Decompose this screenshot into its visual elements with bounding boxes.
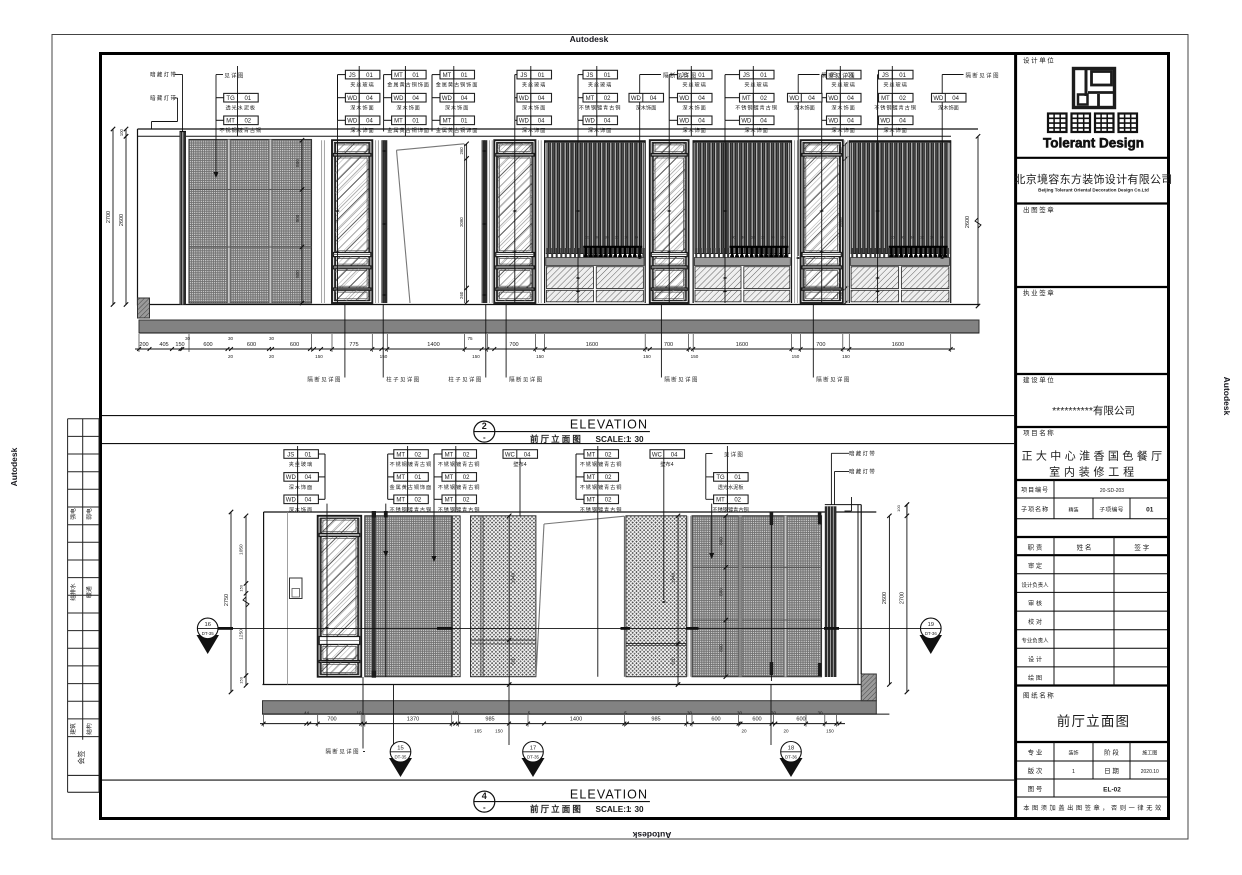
svg-text:深木饰面: 深木饰面 [289,483,313,491]
svg-text:44: 44 [304,711,310,716]
svg-text:隔断见详图: 隔断见详图 [663,72,697,80]
svg-text:01: 01 [415,475,422,481]
svg-text:200: 200 [139,342,148,348]
svg-text:深木饰面: 深木饰面 [445,104,469,112]
svg-text:04: 04 [698,119,705,125]
svg-text:30: 30 [771,711,777,716]
svg-text:1050: 1050 [239,544,245,555]
svg-text:Autodesk: Autodesk [632,830,671,840]
svg-text:深木饰面: 深木饰面 [522,126,546,134]
svg-text:不锈钢镀青古铜: 不锈钢镀青古铜 [219,126,262,134]
svg-text:WD: WD [631,96,642,102]
svg-text:150: 150 [315,354,323,359]
svg-text:1600: 1600 [586,342,598,348]
svg-text:JS: JS [586,73,593,79]
svg-text:04: 04 [671,452,678,458]
svg-text:TG: TG [226,96,235,102]
svg-text:1400: 1400 [427,342,439,348]
svg-text:100: 100 [896,504,901,511]
svg-text:30: 30 [891,236,895,240]
svg-text:金属黄古铜饰面: 金属黄古铜饰面 [436,126,479,134]
svg-text:夹丝玻璃: 夹丝玻璃 [289,460,313,468]
svg-text:600: 600 [247,342,256,348]
svg-text:金属黄古铜饰面: 金属黄古铜饰面 [387,81,430,89]
svg-text:600: 600 [796,717,805,723]
svg-text:图纸名称: 图纸名称 [1023,691,1055,700]
svg-text:深木饰面: 深木饰面 [744,126,768,134]
svg-text:150: 150 [495,729,503,734]
svg-text:02: 02 [244,119,251,125]
svg-text:DT-35: DT-35 [202,631,215,636]
svg-text:01: 01 [1146,507,1154,514]
svg-text:前厅立面图: 前厅立面图 [1057,713,1131,729]
svg-text:30: 30 [817,711,823,716]
svg-text:260: 260 [459,291,464,299]
svg-text:透光水泥板: 透光水泥板 [718,483,745,491]
svg-text:04: 04 [305,475,312,481]
svg-text:专 业: 专 业 [1028,748,1043,757]
svg-text::: : [629,805,632,814]
svg-text:隔断见详图: 隔断见详图 [307,376,341,384]
svg-text:深木饰面: 深木饰面 [522,104,546,112]
svg-text:02: 02 [899,96,906,102]
svg-text:30: 30 [901,236,905,240]
svg-text:精装: 精装 [1068,507,1078,514]
svg-text:深木饰面: 深木饰面 [938,104,959,112]
svg-text:04: 04 [847,119,854,125]
svg-text:WD: WD [442,96,453,102]
svg-text:MT: MT [443,119,452,125]
svg-text:暗藏灯带: 暗藏灯带 [849,450,876,458]
svg-text:隔断见详图: 隔断见详图 [664,376,698,384]
svg-text::: : [629,435,632,444]
svg-text:04: 04 [650,96,657,102]
svg-text:30: 30 [595,236,599,240]
svg-text:04: 04 [524,452,531,458]
svg-text:DT-36: DT-36 [925,631,938,636]
svg-text:15: 15 [397,746,403,752]
svg-text:600: 600 [203,342,212,348]
svg-text:前厅立面图: 前厅立面图 [530,434,583,444]
svg-text:柱子见详图: 柱子见详图 [448,376,482,384]
svg-text:2700: 2700 [899,592,905,604]
svg-text:30: 30 [185,336,191,341]
svg-text:MT: MT [396,498,405,504]
svg-text:20: 20 [269,354,275,359]
svg-text:04: 04 [538,96,545,102]
svg-text:800: 800 [295,159,300,167]
svg-text:MT: MT [445,452,454,458]
svg-text:01: 01 [244,96,251,102]
svg-text:20-SD-203: 20-SD-203 [1100,488,1124,494]
svg-text:260: 260 [838,147,843,155]
svg-text:WD: WD [741,119,752,125]
svg-text:JS: JS [349,73,356,79]
svg-text:75: 75 [467,336,473,341]
svg-text:700: 700 [327,717,336,723]
svg-text:JS: JS [882,73,889,79]
svg-text:30: 30 [771,236,775,240]
svg-text:图 号: 图 号 [1028,785,1043,793]
svg-text:02: 02 [605,498,612,504]
svg-text:深木饰面: 深木饰面 [682,104,706,112]
svg-text:阶 段: 阶 段 [1104,748,1119,757]
svg-text:夹丝玻璃: 夹丝玻璃 [831,81,855,89]
svg-text:MT: MT [742,96,751,102]
svg-text:MT: MT [881,96,890,102]
svg-text:19: 19 [928,622,934,628]
svg-text:SCALE:1: SCALE:1 [596,435,631,444]
svg-text:800: 800 [718,537,723,545]
svg-text:18: 18 [788,746,794,752]
svg-text:不锈钢镀青古铜: 不锈钢镀青古铜 [874,104,917,112]
svg-text:30: 30 [228,336,234,341]
svg-text:Tolerant Design: Tolerant Design [1043,136,1144,151]
svg-text:700: 700 [816,342,825,348]
svg-text:04: 04 [366,96,373,102]
svg-text:WD: WD [286,498,297,504]
svg-text:1: 1 [1072,769,1075,775]
svg-text:透光水泥板: 透光水泥板 [225,104,255,112]
svg-text:执业签章: 执业签章 [1023,288,1055,297]
svg-text:Beijing Tolerant Oriental Deco: Beijing Tolerant Oriental Decoration Des… [1038,188,1149,193]
svg-text:MT: MT [394,119,403,125]
svg-text:620: 620 [511,657,516,665]
svg-text:30: 30 [920,236,924,240]
svg-text:深木饰面: 深木饰面 [396,104,420,112]
svg-text:150: 150 [380,354,388,359]
svg-text:01: 01 [538,73,545,79]
svg-text:隔断见详图: 隔断见详图 [326,748,360,756]
svg-text:WD: WD [347,96,358,102]
svg-text:100: 100 [119,128,124,136]
svg-text:Autodesk: Autodesk [1222,377,1232,416]
svg-text:30: 30 [585,236,589,240]
svg-text:隔断见详图: 隔断见详图 [822,72,856,80]
svg-text:WD: WD [828,119,839,125]
svg-text:壁布4: 壁布4 [660,460,673,468]
svg-text:02: 02 [463,452,470,458]
svg-text:20: 20 [741,729,747,734]
svg-text:EL-02: EL-02 [1103,787,1121,794]
svg-text:600: 600 [711,717,720,723]
svg-text:MT: MT [396,452,405,458]
svg-text:绘 图: 绘 图 [1028,674,1042,682]
svg-text:04: 04 [698,96,705,102]
svg-text:WD: WD [789,96,800,102]
svg-text:1600: 1600 [736,342,748,348]
svg-text:WD: WD [933,96,944,102]
svg-text:150: 150 [842,354,850,359]
svg-text:04: 04 [366,119,373,125]
svg-text:02: 02 [415,498,422,504]
svg-text:夹丝玻璃: 夹丝玻璃 [350,81,374,89]
svg-text:暗藏灯带: 暗藏灯带 [849,468,876,476]
svg-text:不锈钢镀青古铜: 不锈钢镀青古铜 [438,483,481,491]
svg-text:不锈钢镀青古铜: 不锈钢镀青古铜 [579,104,622,112]
svg-text:01: 01 [305,452,312,458]
svg-text:版 次: 版 次 [1028,766,1043,775]
svg-text:04: 04 [461,96,468,102]
svg-text:985: 985 [651,717,660,723]
svg-text:30: 30 [635,435,645,444]
svg-text:深木饰面: 深木饰面 [794,104,815,112]
svg-text:02: 02 [605,452,612,458]
svg-text:04: 04 [808,96,815,102]
svg-text:柱子见详图: 柱子见详图 [386,376,420,384]
svg-text:暗藏灯带: 暗藏灯带 [150,71,177,79]
svg-text:深木饰面: 深木饰面 [350,104,374,112]
svg-text:30: 30 [635,805,645,814]
svg-text:结构: 结构 [85,723,93,735]
svg-text:MT: MT [587,498,596,504]
svg-text:WD: WD [394,96,405,102]
svg-text:-: - [483,803,486,812]
svg-text:02: 02 [760,96,767,102]
svg-text:150: 150 [536,354,544,359]
svg-text:16: 16 [204,622,210,628]
svg-text:**********有限公司: **********有限公司 [1052,404,1135,417]
svg-text:260: 260 [459,147,464,155]
svg-text:职 责: 职 责 [1028,543,1043,552]
svg-text:DT-36: DT-36 [785,755,798,760]
svg-text:620: 620 [671,657,676,665]
svg-text:室内装修工程: 室内装修工程 [1049,465,1138,479]
svg-text:01: 01 [366,73,373,79]
svg-text:见详图: 见详图 [724,451,744,459]
svg-text:JS: JS [743,73,750,79]
svg-text:强电: 强电 [69,508,77,520]
svg-text:会签: 会签 [76,751,85,765]
svg-text:1400: 1400 [570,717,582,723]
svg-text:150: 150 [239,676,244,683]
svg-text:MT: MT [716,498,725,504]
svg-text:01: 01 [461,73,468,79]
svg-text:2600: 2600 [965,216,971,228]
svg-text:正大中心淮香国色餐厅: 正大中心淮香国色餐厅 [1022,449,1166,463]
svg-text:金属黄古铜饰面: 金属黄古铜饰面 [387,126,430,134]
svg-text:04: 04 [412,96,419,102]
svg-text:2: 2 [482,421,487,431]
svg-text:不锈钢镀青古铜: 不锈钢镀青古铜 [712,505,748,513]
svg-text:01: 01 [604,73,611,79]
svg-text:01: 01 [899,73,906,79]
svg-text:子项编号: 子项编号 [1099,506,1123,514]
svg-text:30: 30 [910,236,914,240]
svg-text:04: 04 [899,119,906,125]
svg-text:02: 02 [604,96,611,102]
svg-text:2080: 2080 [459,217,464,227]
svg-text:10: 10 [452,711,458,716]
svg-text:设计负责人: 设计负责人 [1022,581,1050,589]
svg-text:02: 02 [463,498,470,504]
svg-text:WD: WD [519,96,530,102]
svg-text:150: 150 [792,354,800,359]
svg-text:30: 30 [751,236,755,240]
svg-text:WD: WD [347,119,358,125]
svg-text:建筑: 建筑 [69,723,77,735]
svg-text:见详图: 见详图 [224,72,244,80]
svg-text:700: 700 [664,342,673,348]
svg-text:800: 800 [718,644,723,652]
svg-text:深木饰面: 深木饰面 [831,104,855,112]
svg-text:405: 405 [159,342,168,348]
svg-text:01: 01 [412,119,419,125]
svg-text:隔断见详图: 隔断见详图 [509,376,543,384]
svg-text:项目编号: 项目编号 [1021,486,1049,494]
svg-text:01: 01 [461,119,468,125]
svg-text:150: 150 [826,729,834,734]
svg-text:JS: JS [520,73,527,79]
svg-text:04: 04 [305,498,312,504]
svg-text:深木饰面: 深木饰面 [682,126,706,134]
svg-text:5: 5 [528,711,531,716]
svg-text:02: 02 [415,452,422,458]
svg-text:金属黄古铜饰面: 金属黄古铜饰面 [389,483,432,491]
svg-text:17: 17 [530,746,536,752]
svg-text:ELEVATION: ELEVATION [570,788,648,802]
svg-text:MT: MT [586,96,595,102]
svg-text:设 计: 设 计 [1028,655,1042,663]
svg-text:深木饰面: 深木饰面 [289,505,313,513]
svg-text:WD: WD [828,96,839,102]
svg-text:04: 04 [760,119,767,125]
svg-text:校 对: 校 对 [1028,618,1042,626]
svg-text:签 字: 签 字 [1134,543,1149,552]
svg-text:ELEVATION: ELEVATION [570,418,648,432]
svg-text:01: 01 [698,73,705,79]
svg-text:20: 20 [228,354,234,359]
svg-text:隔断见详图: 隔断见详图 [816,376,850,384]
svg-text:600: 600 [290,342,299,348]
svg-text:800: 800 [295,214,300,222]
svg-text:30: 30 [615,236,619,240]
svg-text:1600: 1600 [892,342,904,348]
svg-text:不锈钢镀青古铜: 不锈钢镀青古铜 [580,460,623,468]
svg-text:审 定: 审 定 [1028,562,1042,570]
svg-text:5: 5 [624,711,627,716]
svg-text:不锈钢镀青古铜: 不锈钢镀青古铜 [389,505,432,513]
svg-text:30: 30 [605,236,609,240]
svg-text:SCALE:1: SCALE:1 [596,805,631,814]
svg-text:04: 04 [538,119,545,125]
svg-text:WC: WC [652,452,663,458]
svg-text:150: 150 [472,354,480,359]
svg-text:30: 30 [741,236,745,240]
svg-text:WD: WD [585,119,596,125]
svg-text:夹丝玻璃: 夹丝玻璃 [588,81,612,89]
svg-text:MT: MT [226,119,235,125]
svg-text:深木饰面: 深木饰面 [883,126,907,134]
svg-text:30: 30 [687,711,693,716]
svg-text:夹丝玻璃: 夹丝玻璃 [682,81,706,89]
svg-text:Autodesk: Autodesk [570,34,609,44]
svg-text:不锈钢镀青古铜: 不锈钢镀青古铜 [438,460,481,468]
svg-text:MT: MT [443,73,452,79]
svg-text:WD: WD [519,119,530,125]
svg-text:150: 150 [175,342,184,348]
svg-text:WD: WD [286,475,297,481]
svg-text:施工图: 施工图 [1142,750,1157,757]
svg-text:600: 600 [752,717,761,723]
svg-text:不锈钢镀青古铜: 不锈钢镀青古铜 [438,505,481,513]
svg-text:20: 20 [783,729,789,734]
svg-text:30: 30 [737,711,743,716]
svg-text:不锈钢镀青古铜: 不锈钢镀青古铜 [580,505,623,513]
svg-text:深木饰面: 深木饰面 [636,104,657,112]
svg-text:01: 01 [760,73,767,79]
svg-text:不锈钢镀青古铜: 不锈钢镀青古铜 [580,483,623,491]
svg-text:日 期: 日 期 [1104,767,1119,775]
svg-text:夹丝玻璃: 夹丝玻璃 [883,81,907,89]
svg-text:2600: 2600 [119,214,125,226]
svg-text:WD: WD [880,119,891,125]
svg-text:150: 150 [643,354,651,359]
svg-text:1250: 1250 [239,629,245,640]
svg-text:4: 4 [482,791,487,801]
svg-text:金属黄古铜饰面: 金属黄古铜饰面 [436,81,479,89]
svg-text:2020.10: 2020.10 [1141,769,1159,775]
svg-text:深木饰面: 深木饰面 [588,126,612,134]
svg-text:30: 30 [781,236,785,240]
svg-text:出图签章: 出图签章 [1023,205,1055,214]
svg-text:1370: 1370 [407,717,419,723]
svg-text:800: 800 [718,588,723,596]
svg-text:30: 30 [625,236,629,240]
svg-text:MT: MT [587,475,596,481]
svg-text:02: 02 [463,475,470,481]
svg-text:2750: 2750 [224,594,230,606]
svg-text:项目名称: 项目名称 [1023,428,1055,437]
svg-text:04: 04 [952,96,959,102]
svg-text:150: 150 [691,354,699,359]
svg-text:MT: MT [445,498,454,504]
svg-text:夹丝玻璃: 夹丝玻璃 [744,81,768,89]
svg-text:775: 775 [349,342,358,348]
svg-text:WC: WC [505,452,516,458]
svg-text:985: 985 [485,717,494,723]
svg-text:800: 800 [295,270,300,278]
svg-text:不锈钢镀青古铜: 不锈钢镀青古铜 [389,460,432,468]
svg-text:1940: 1940 [671,572,677,583]
svg-text:夹丝玻璃: 夹丝玻璃 [522,81,546,89]
svg-text:不锈钢镀青古铜: 不锈钢镀青古铜 [735,104,778,112]
svg-text:MT: MT [587,452,596,458]
svg-text:30: 30 [269,336,275,341]
svg-text:2080: 2080 [838,217,843,227]
svg-text:02: 02 [605,475,612,481]
svg-text:弱电: 弱电 [85,508,93,520]
svg-text:260: 260 [838,291,843,299]
svg-text:北京境容东方装饰设计有限公司: 北京境容东方装饰设计有限公司 [1014,172,1172,186]
svg-text:165: 165 [474,729,482,734]
svg-text:DT-35: DT-35 [395,755,408,760]
svg-text:审 核: 审 核 [1028,599,1042,607]
svg-text:30: 30 [634,236,638,240]
svg-text:150: 150 [239,584,244,591]
svg-text:2700: 2700 [106,211,112,223]
svg-text:子项名称: 子项名称 [1021,506,1049,514]
svg-text:TG: TG [716,475,725,481]
svg-text:JS: JS [287,452,294,458]
svg-text:04: 04 [604,119,611,125]
svg-text:专业负责人: 专业负责人 [1022,637,1050,645]
svg-text:WD: WD [679,96,690,102]
svg-text:WD: WD [679,119,690,125]
svg-text:暖通: 暖通 [85,586,93,598]
svg-text:01: 01 [412,73,419,79]
svg-text:02: 02 [734,498,741,504]
